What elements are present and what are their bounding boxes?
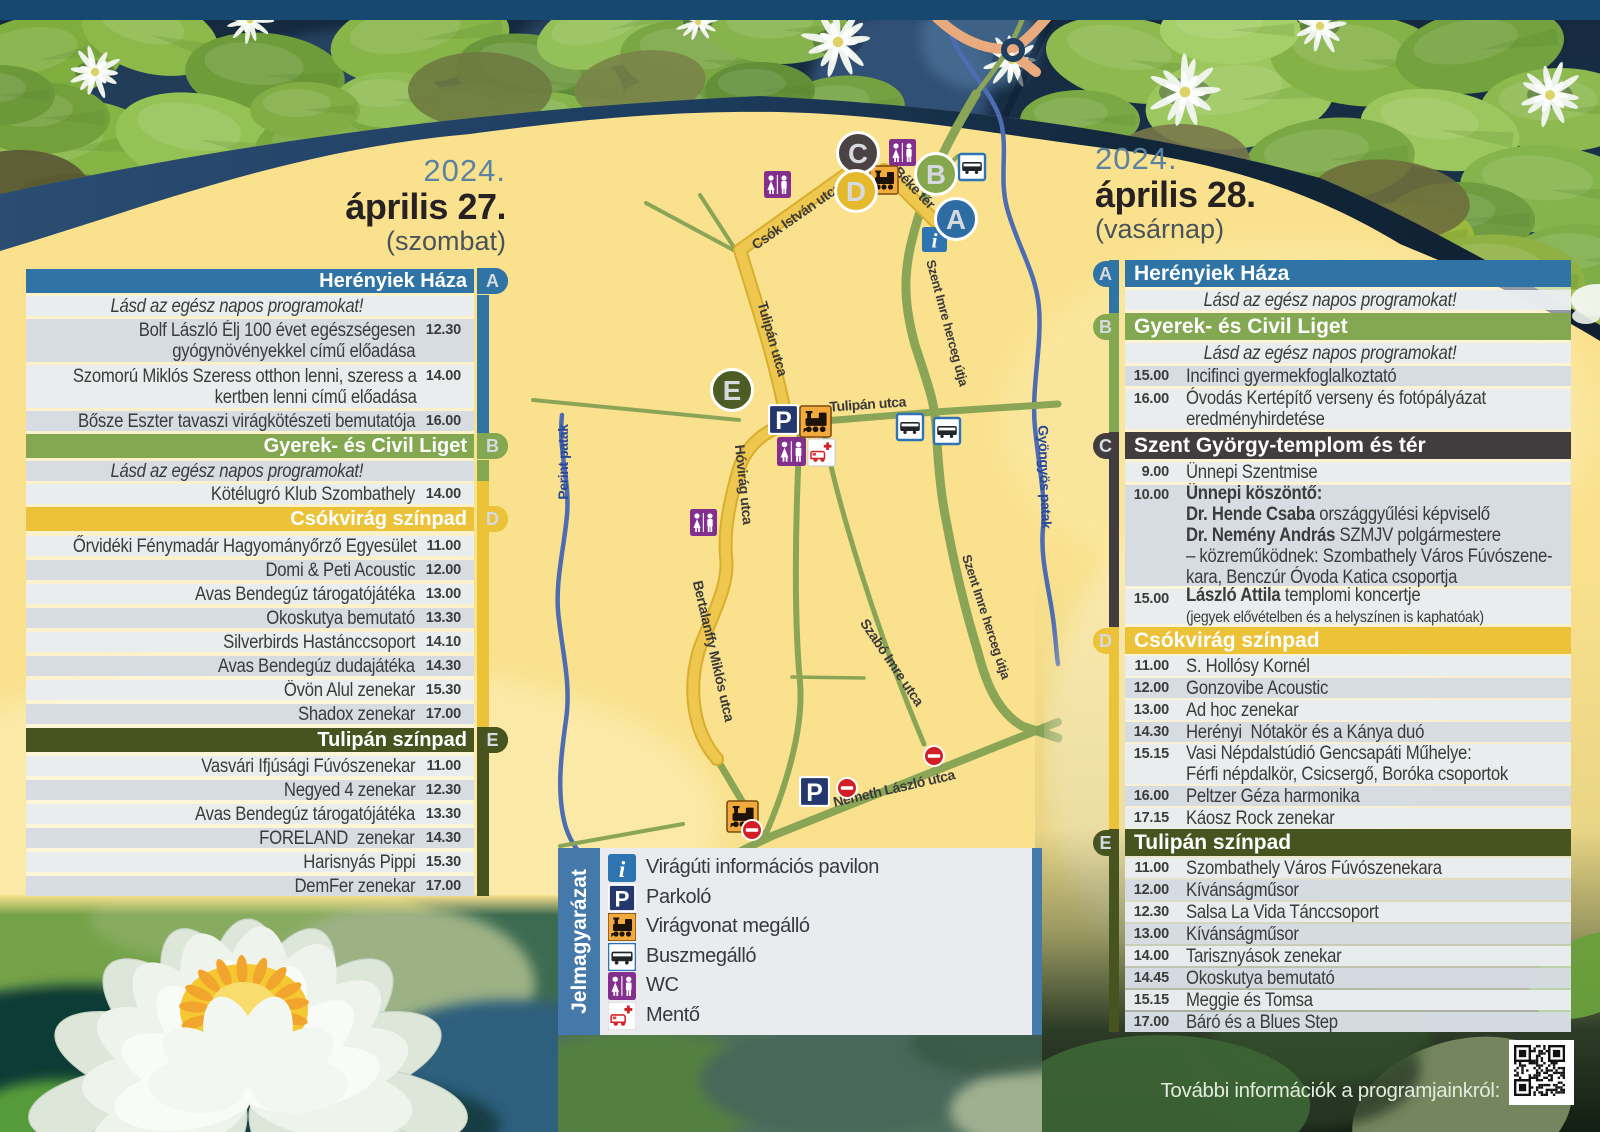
svg-text:P: P xyxy=(775,408,792,435)
svg-text:E: E xyxy=(723,375,741,406)
svg-text:C: C xyxy=(848,138,868,169)
svg-text:A: A xyxy=(946,204,966,235)
svg-text:P: P xyxy=(615,886,630,911)
svg-text:B: B xyxy=(926,159,946,190)
svg-text:P: P xyxy=(806,780,823,807)
svg-text:i: i xyxy=(619,857,626,882)
svg-text:D: D xyxy=(846,176,866,207)
svg-text:Perint patak: Perint patak xyxy=(555,424,571,500)
svg-text:i: i xyxy=(932,228,938,252)
